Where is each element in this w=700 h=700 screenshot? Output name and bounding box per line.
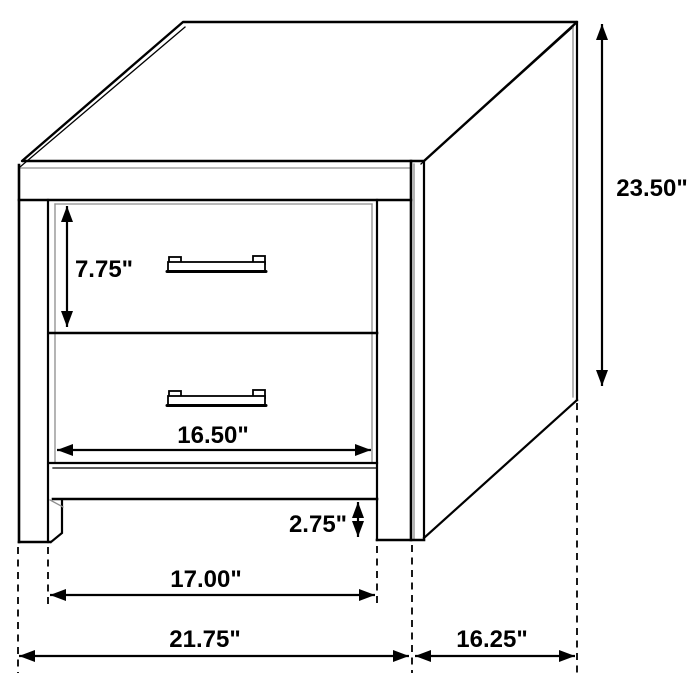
side-panel-bottom-edge (424, 400, 577, 538)
drawer-2-handle (167, 390, 266, 406)
drawer-handles (167, 256, 266, 406)
drawer-width-label: 16.50" (177, 422, 248, 449)
foot-clearance-label: 2.75" (289, 511, 347, 538)
overall-width-label: 21.75" (169, 626, 240, 653)
diagram-canvas: 23.50" 7.75" 16.50" 2.75" 17.00" 21.75" … (0, 0, 700, 700)
top-drawer-height-label: 7.75" (75, 256, 133, 283)
overall-height-label: 23.50" (616, 175, 687, 202)
drawer-1-handle (167, 256, 266, 272)
overall-depth-label: 16.25" (456, 626, 527, 653)
dimension-labels: 23.50" 7.75" 16.50" 2.75" 17.00" 21.75" … (75, 175, 688, 653)
top-face (22, 22, 577, 161)
nightstand-dimension-diagram: 23.50" 7.75" 16.50" 2.75" 17.00" 21.75" … (0, 0, 700, 700)
drawer-1-handle-bar (168, 262, 265, 271)
left-foot-stretcher-detail (51, 501, 62, 542)
between-legs-width-label: 17.00" (170, 566, 241, 593)
drawer-2-handle-bar (168, 396, 265, 405)
